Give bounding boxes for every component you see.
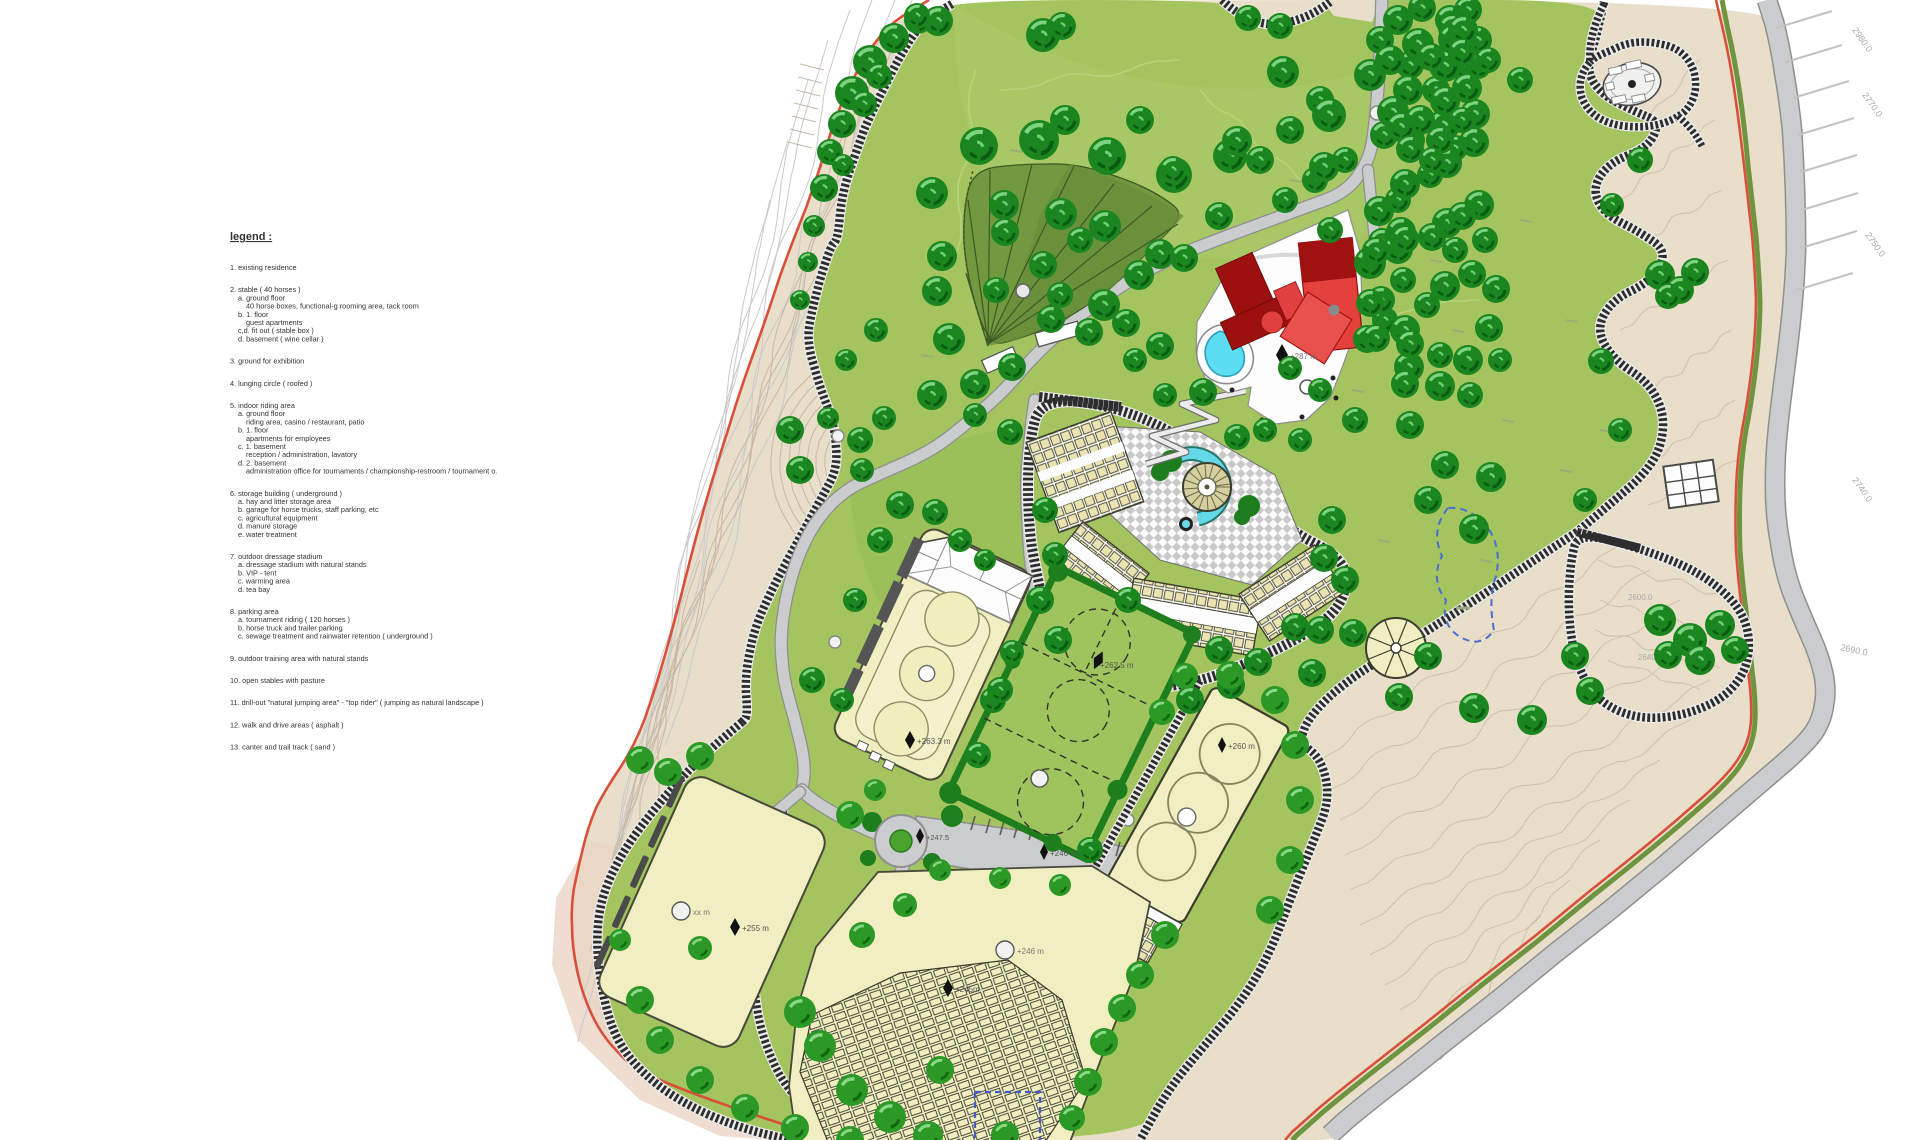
- svg-text:40 horse boxes, functional-g r: 40 horse boxes, functional-g rooming are…: [246, 302, 419, 311]
- svg-text:4. lunging circle ( roofed ): 4. lunging circle ( roofed ): [230, 379, 312, 388]
- svg-text:+246 m: +246 m: [1050, 849, 1077, 858]
- svg-text:+255 m: +255 m: [742, 924, 769, 933]
- svg-text:1. existing residence: 1. existing residence: [230, 263, 297, 272]
- svg-text:+247.5: +247.5: [926, 833, 949, 842]
- svg-text:12. walk and drive areas ( asp: 12. walk and drive areas ( asphalt ): [230, 720, 344, 729]
- svg-text:9. outdoor training area with: 9. outdoor training area with natural st…: [230, 654, 369, 663]
- svg-text:+246 m: +246 m: [1017, 947, 1044, 956]
- svg-text:d. tea bay: d. tea bay: [238, 585, 270, 594]
- svg-text:2600.0: 2600.0: [1628, 593, 1653, 602]
- svg-text:legend :: legend :: [230, 231, 272, 243]
- svg-text:+262.5 m: +262.5 m: [1100, 661, 1134, 670]
- svg-text:e. water treatment: e. water treatment: [238, 530, 297, 539]
- svg-text:d. basement ( wine cellar ): d. basement ( wine cellar ): [238, 334, 324, 343]
- svg-text:+245m: +245m: [955, 985, 980, 994]
- svg-text:+263.3 m: +263.3 m: [917, 737, 951, 746]
- svg-text:13. canter and trail track ( s: 13. canter and trail track ( sand ): [230, 743, 335, 752]
- svg-text:administration office for tour: administration office for tournaments / …: [246, 467, 497, 476]
- svg-text:11. drill-out "natural jumping: 11. drill-out "natural jumping area" - "…: [230, 698, 484, 707]
- svg-text:3. ground for exhibition: 3. ground for exhibition: [230, 357, 304, 366]
- svg-text:10. open stables with pasture: 10. open stables with pasture: [230, 676, 325, 685]
- svg-text:c. sewage treatment and rainwa: c. sewage treatment and rainwater retent…: [238, 632, 433, 641]
- svg-text:xx m: xx m: [693, 908, 710, 917]
- svg-text:+260 m: +260 m: [1228, 742, 1255, 751]
